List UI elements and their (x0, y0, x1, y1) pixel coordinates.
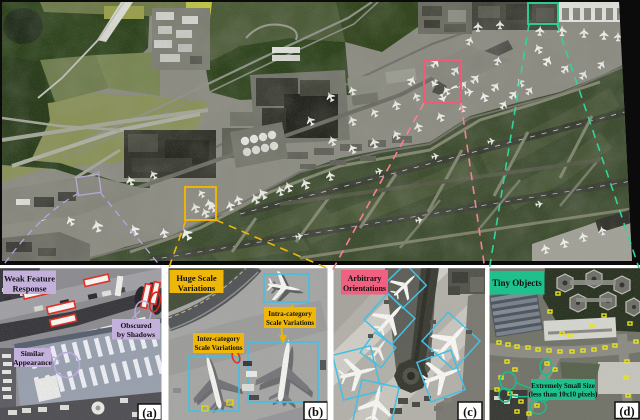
svg-text:Extremely Small Size: Extremely Small Size (531, 382, 595, 390)
svg-text:(d): (d) (619, 405, 634, 419)
svg-text:(less than 10x10 pixels): (less than 10x10 pixels) (529, 391, 598, 399)
svg-text:Appearance: Appearance (13, 358, 52, 367)
svg-text:Arbitrary: Arbitrary (348, 274, 382, 283)
svg-text:Inter-category: Inter-category (197, 335, 240, 343)
svg-text:Scale Variations: Scale Variations (194, 344, 242, 352)
svg-text:Orientations: Orientations (343, 284, 386, 293)
svg-text:Intra-category: Intra-category (268, 310, 312, 318)
svg-text:Obscured: Obscured (120, 321, 152, 330)
svg-text:(a): (a) (142, 406, 157, 420)
svg-text:Huge Scale: Huge Scale (176, 273, 217, 283)
svg-text:Variations: Variations (178, 283, 216, 293)
svg-text:Scale Variations: Scale Variations (266, 319, 314, 327)
svg-text:Response: Response (12, 284, 46, 294)
svg-text:(b): (b) (308, 405, 323, 419)
svg-text:Tiny Objects: Tiny Objects (492, 278, 542, 288)
svg-text:by Shadows: by Shadows (117, 330, 155, 339)
svg-text:(c): (c) (463, 405, 477, 419)
svg-text:Weak Feature: Weak Feature (4, 274, 55, 284)
svg-text:Similar: Similar (21, 349, 45, 358)
